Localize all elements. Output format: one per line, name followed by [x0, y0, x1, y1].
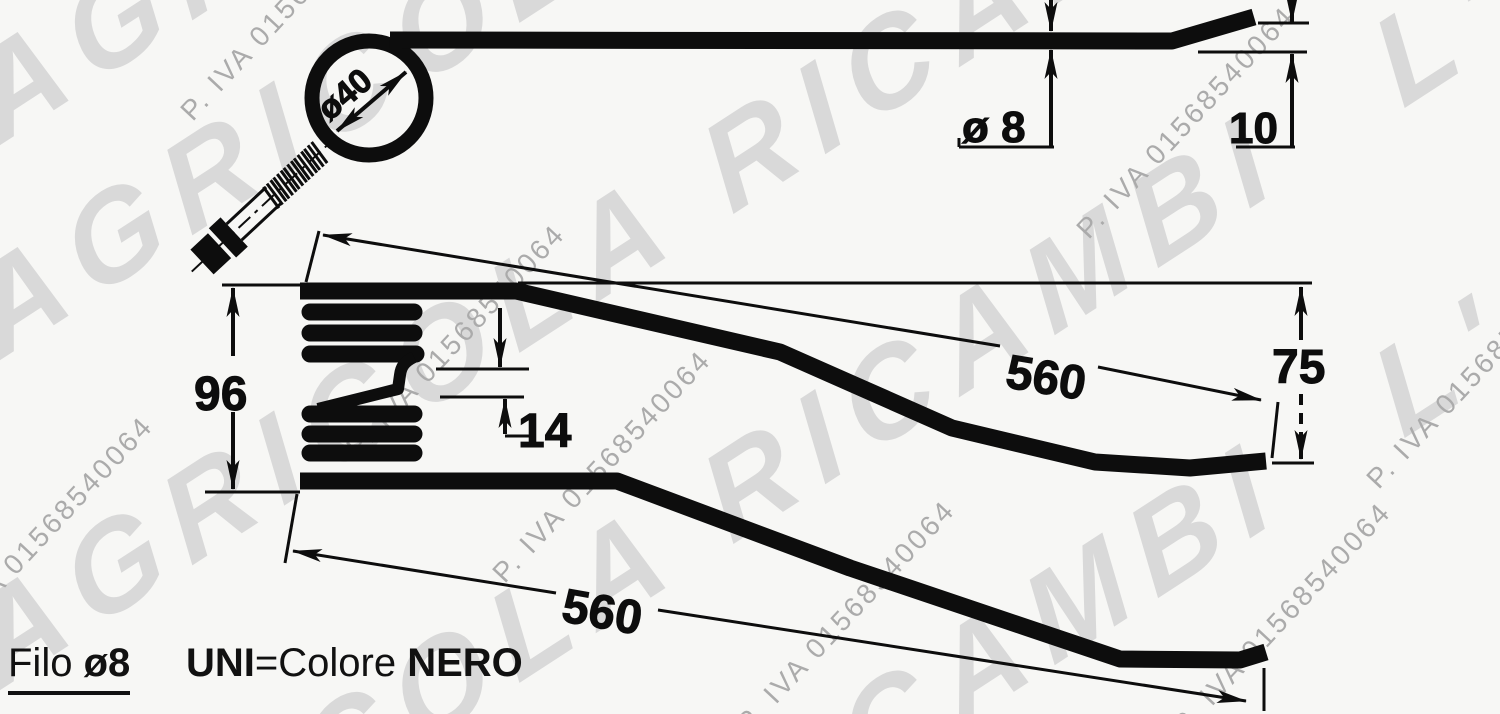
- coil-height-label: 96: [194, 368, 247, 421]
- wire-spec-value: ø8: [84, 641, 131, 685]
- dim-line: [293, 551, 556, 593]
- bolt-shank-edge: [227, 187, 266, 224]
- dim-ext-line: [306, 231, 319, 282]
- color-spec-nero: NERO: [407, 641, 523, 685]
- tine-body: [300, 291, 1266, 660]
- coil-crossover: [318, 357, 414, 409]
- wire-spec-label: Filo ø8: [8, 641, 130, 695]
- upper-arm: [300, 291, 1266, 468]
- wire-profile: [390, 17, 1254, 41]
- tine-technical-drawing: ø40: [0, 0, 1500, 714]
- tip-offset-label: 10: [1229, 104, 1278, 153]
- tip-rise-label: 75: [1272, 341, 1325, 394]
- lower-arm: [300, 481, 1266, 660]
- lower-arm-length-label: 560: [558, 580, 646, 646]
- coil-bars-upper: [310, 312, 416, 354]
- color-spec-mid: =Colore: [255, 641, 407, 685]
- dim-line: [1098, 367, 1261, 400]
- upper-arm-length-label: 560: [1002, 346, 1090, 411]
- coil-bars-lower: [310, 414, 414, 453]
- coil-gap-label: 14: [518, 405, 572, 458]
- straight-wire-detail: [390, 17, 1254, 41]
- mounting-bolt: [178, 130, 341, 286]
- bolt-thread-hatch: [261, 142, 329, 208]
- wire-spec-prefix: Filo: [8, 641, 84, 685]
- color-spec-uni: UNI: [186, 641, 255, 685]
- drawing-page: L'AGRICOLA RICAMBIL'AGRICOLA RICAMBI L'A…: [0, 0, 1500, 714]
- dimension-tip-rise: [518, 283, 1314, 463]
- dimension-upper-arm-length: [306, 231, 1278, 458]
- color-spec-label: UNI=Colore NERO: [186, 641, 523, 685]
- dim-ext-line: [1272, 402, 1278, 458]
- wire-diameter-label: ø 8: [962, 103, 1026, 152]
- bolt-shank-edge: [242, 203, 281, 240]
